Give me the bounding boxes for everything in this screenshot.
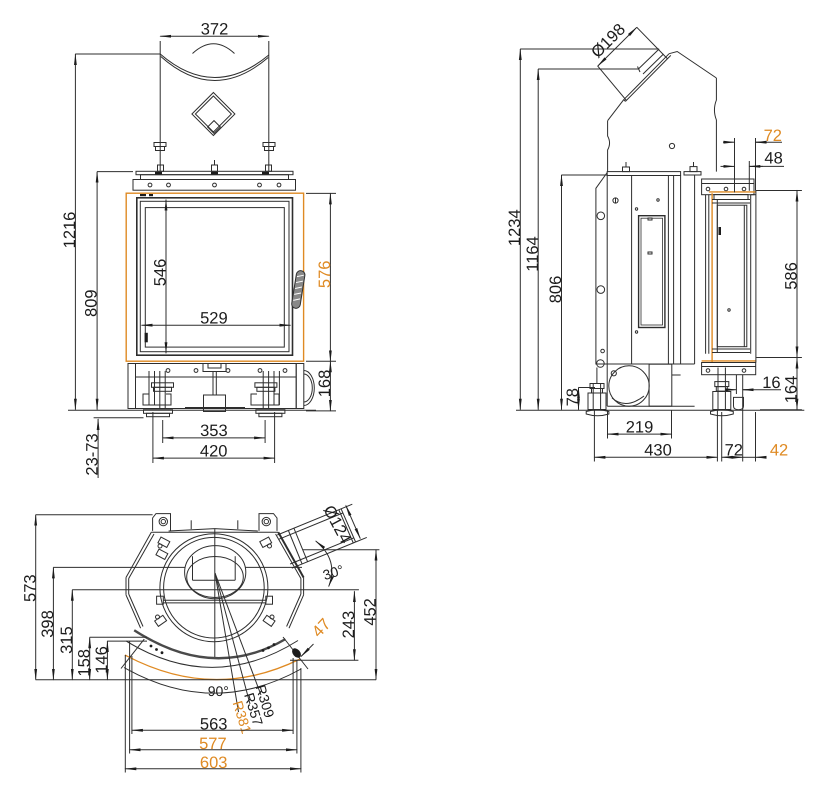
svg-text:806: 806 (547, 276, 565, 304)
svg-text:546: 546 (152, 259, 170, 287)
svg-text:158: 158 (75, 649, 93, 677)
svg-text:576: 576 (316, 261, 334, 289)
svg-text:353: 353 (200, 422, 228, 440)
svg-text:577: 577 (199, 735, 227, 753)
svg-text:1234: 1234 (506, 209, 524, 246)
svg-text:586: 586 (783, 262, 801, 290)
svg-text:1216: 1216 (61, 212, 79, 249)
svg-text:603: 603 (200, 754, 228, 772)
svg-text:372: 372 (201, 21, 229, 39)
svg-text:315: 315 (58, 626, 76, 654)
svg-text:72: 72 (764, 127, 782, 145)
svg-text:420: 420 (200, 442, 228, 460)
svg-text:78: 78 (564, 388, 582, 406)
svg-text:452: 452 (362, 598, 380, 626)
svg-text:529: 529 (200, 310, 228, 328)
svg-text:42: 42 (770, 442, 788, 460)
svg-text:168: 168 (316, 370, 334, 398)
svg-text:430: 430 (644, 442, 672, 460)
svg-text:16: 16 (762, 374, 780, 392)
svg-text:809: 809 (83, 289, 101, 317)
svg-text:164: 164 (783, 376, 801, 404)
svg-text:219: 219 (626, 418, 654, 436)
svg-text:563: 563 (200, 715, 228, 733)
svg-text:90°: 90° (208, 683, 229, 699)
svg-text:1164: 1164 (524, 236, 542, 271)
svg-text:243: 243 (340, 611, 358, 639)
svg-text:48: 48 (764, 149, 782, 167)
svg-text:398: 398 (39, 610, 57, 638)
svg-text:23-73: 23-73 (84, 433, 102, 475)
svg-text:573: 573 (21, 574, 39, 602)
svg-text:146: 146 (93, 646, 111, 674)
svg-text:72: 72 (725, 442, 743, 460)
